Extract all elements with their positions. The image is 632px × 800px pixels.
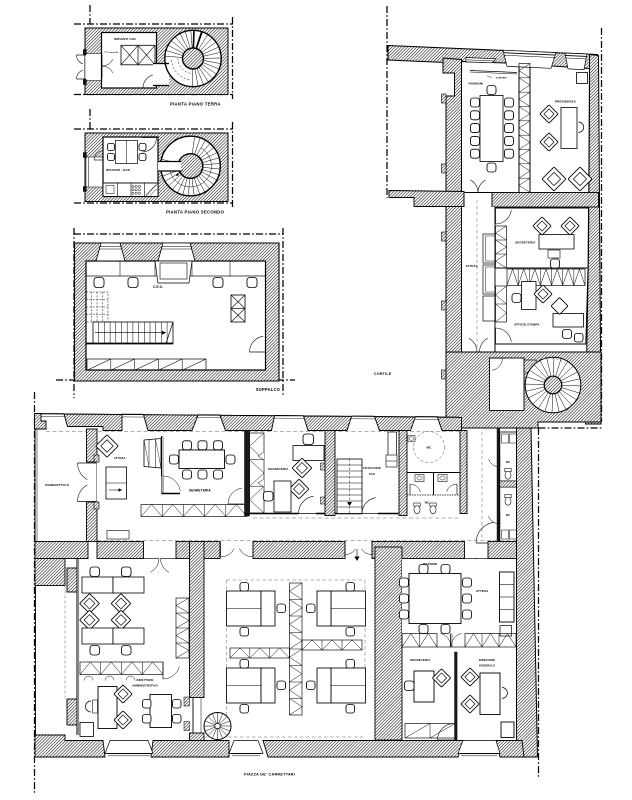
svg-text:FOTOCOPIE: FOTOCOPIE	[363, 466, 381, 470]
svg-text:DIRETTORE: DIRETTORE	[136, 678, 153, 682]
svg-text:WC: WC	[506, 514, 510, 517]
svg-text:PIANTA PIANO SECONDO: PIANTA PIANO SECONDO	[166, 210, 225, 215]
svg-text:SEGRETERIA: SEGRETERIA	[410, 658, 431, 662]
svg-text:schermo: schermo	[496, 77, 507, 80]
svg-text:RISTORO - BAR: RISTORO - BAR	[106, 168, 131, 172]
svg-text:PIANTA PIANO TERRA: PIANTA PIANO TERRA	[170, 102, 221, 107]
svg-text:ATTESA: ATTESA	[114, 456, 126, 460]
svg-text:SEGRETERIA: SEGRETERIA	[515, 241, 536, 245]
svg-text:PRESIDENZA: PRESIDENZA	[555, 100, 577, 104]
svg-text:C.E.D.: C.E.D.	[153, 285, 163, 289]
svg-text:FAX: FAX	[369, 472, 375, 476]
svg-text:UFFICIO STAMPA: UFFICIO STAMPA	[514, 323, 540, 327]
svg-text:WC: WC	[427, 446, 432, 450]
svg-text:SOPPALCO: SOPPALCO	[256, 387, 281, 392]
svg-text:SEGRETERIA: SEGRETERIA	[268, 467, 289, 471]
svg-text:GENERALE: GENERALE	[479, 664, 495, 668]
svg-text:ATTESA: ATTESA	[476, 589, 489, 593]
svg-text:IMPIANTI CO2: IMPIANTI CO2	[114, 37, 136, 41]
svg-text:AMMINISTRATIVO: AMMINISTRATIVO	[132, 684, 158, 688]
svg-text:SEGRETERIA: SEGRETERIA	[189, 489, 211, 493]
svg-text:PIANEROTTOLO: PIANEROTTOLO	[45, 483, 70, 487]
svg-text:cancello: cancello	[109, 52, 119, 54]
svg-text:WC: WC	[425, 501, 430, 505]
svg-text:RIUNIONI: RIUNIONI	[469, 82, 484, 86]
svg-text:ATTESA: ATTESA	[466, 264, 479, 268]
svg-text:WC: WC	[506, 461, 510, 464]
svg-text:DIREZIONE: DIREZIONE	[479, 658, 495, 662]
svg-text:CORTILE: CORTILE	[374, 372, 392, 376]
svg-text:PIAZZA DE' CARRETTARI: PIAZZA DE' CARRETTARI	[244, 773, 295, 777]
